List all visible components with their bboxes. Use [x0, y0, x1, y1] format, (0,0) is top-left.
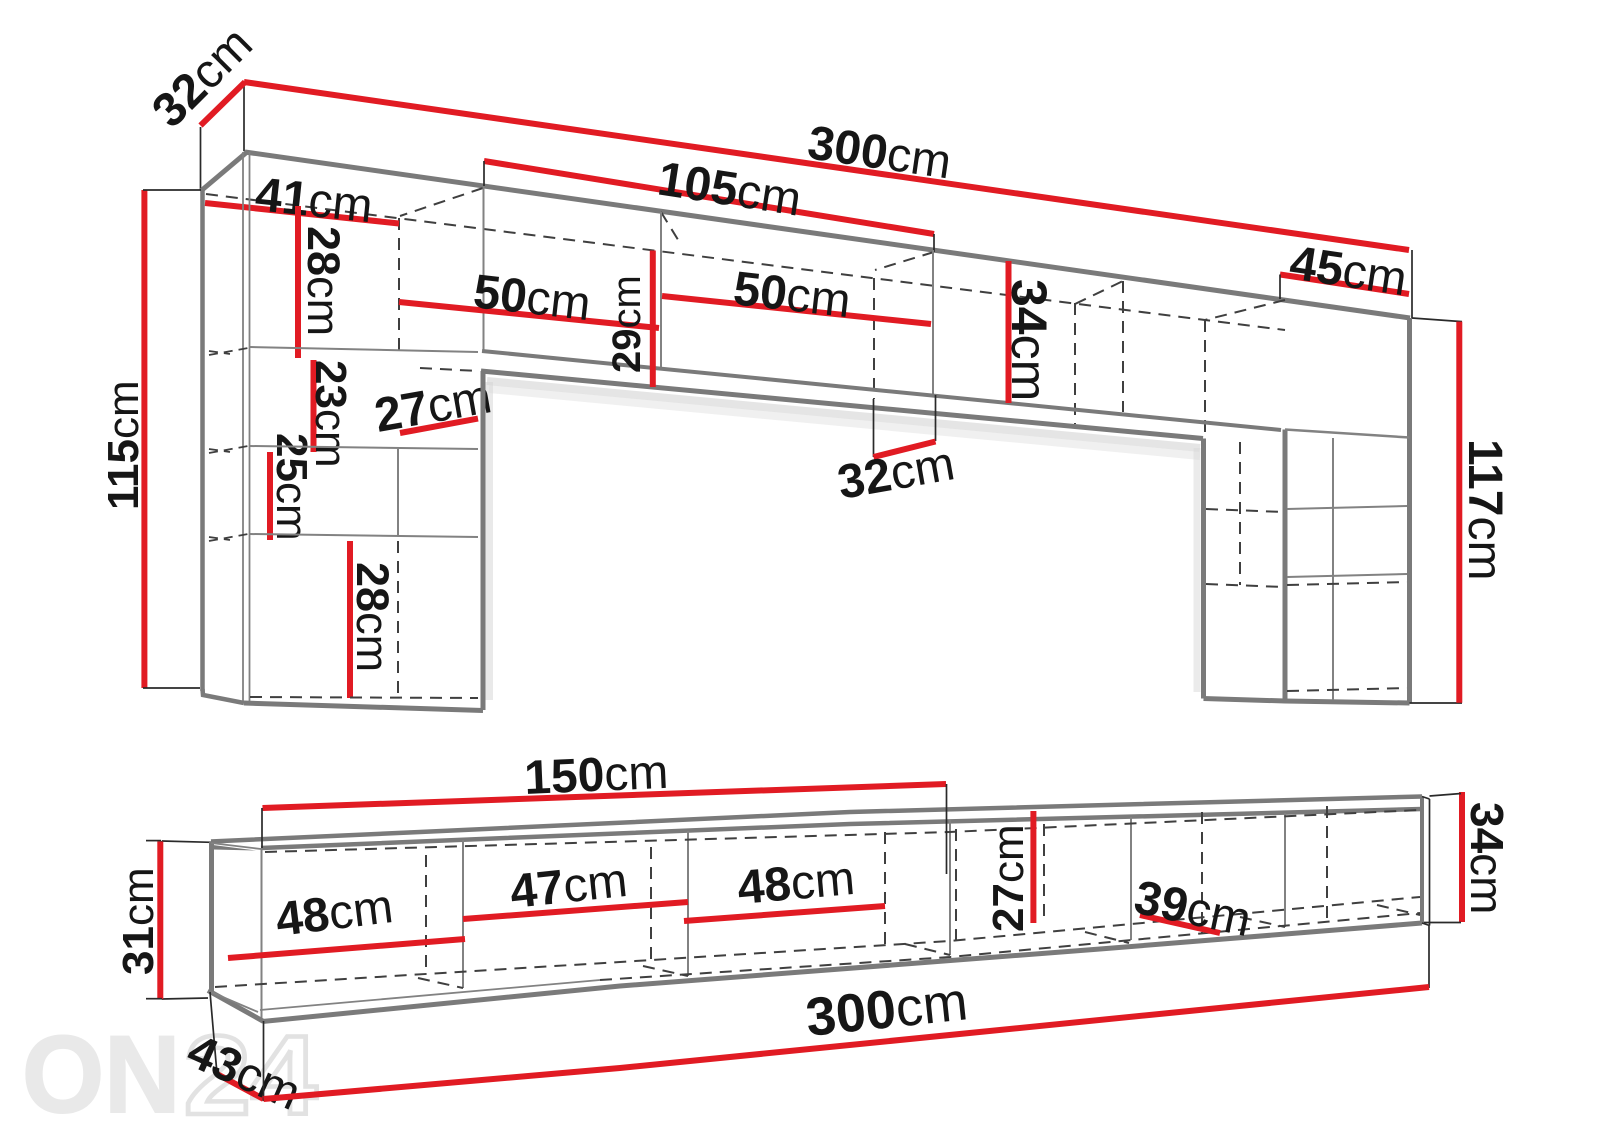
svg-text:31cm: 31cm — [114, 867, 163, 975]
svg-text:27cm: 27cm — [984, 824, 1033, 932]
svg-text:28cm: 28cm — [347, 562, 398, 672]
svg-text:115cm: 115cm — [99, 380, 148, 510]
svg-text:ON: ON — [22, 1012, 180, 1135]
svg-text:150cm: 150cm — [523, 746, 669, 805]
svg-text:25cm: 25cm — [267, 433, 316, 541]
svg-text:48cm: 48cm — [735, 852, 857, 915]
svg-text:28cm: 28cm — [298, 226, 349, 336]
svg-text:34cm: 34cm — [1461, 802, 1513, 915]
svg-text:34cm: 34cm — [1001, 279, 1057, 401]
svg-text:29cm: 29cm — [605, 275, 649, 373]
svg-text:117cm: 117cm — [1458, 439, 1511, 580]
